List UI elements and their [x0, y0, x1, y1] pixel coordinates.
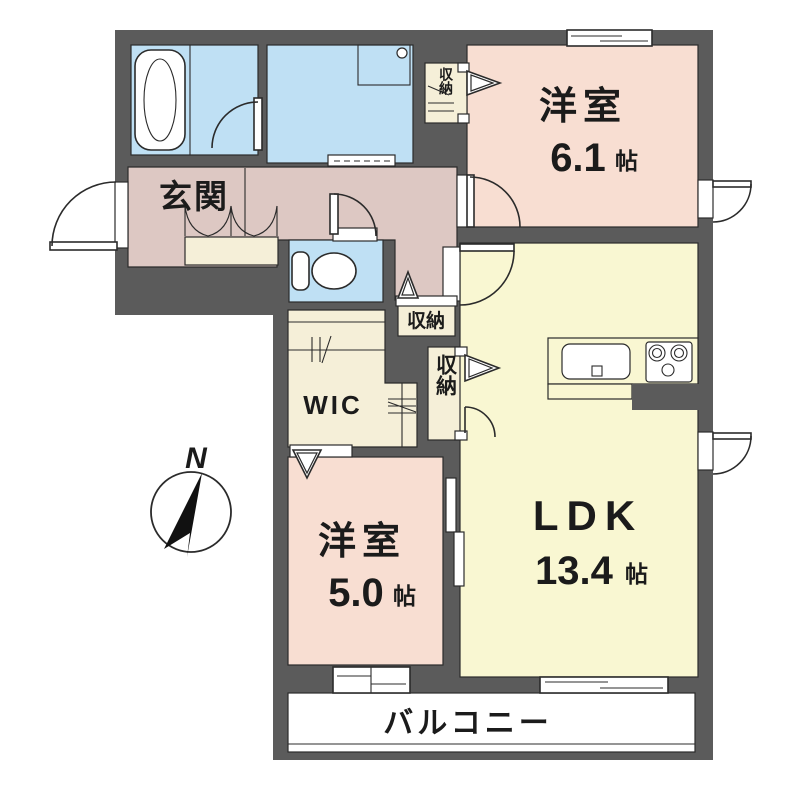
- ldk-size-unit: 帖: [625, 561, 648, 587]
- ldk-window: [540, 677, 668, 693]
- storage-top-label: 収納: [438, 66, 454, 96]
- western2-size-unit: 帖: [393, 583, 416, 609]
- kitchen-wall-stub: [632, 384, 713, 410]
- storage-right-label: 収納: [434, 354, 458, 397]
- entrance-door-opening: [115, 182, 128, 248]
- balcony: バルコニー: [288, 693, 695, 752]
- entrance-door-leaf: [50, 242, 117, 250]
- toilet-door-opening: [333, 228, 377, 241]
- ldk-door-opening: [443, 247, 460, 301]
- shoe-cabinet: [185, 237, 278, 265]
- floor-plan: バルコニー: [0, 0, 800, 800]
- western1-door-leaf: [467, 175, 474, 227]
- bathroom-door-leaf: [254, 98, 262, 150]
- storage-mid-label: 収納: [407, 309, 445, 332]
- kitchen-counter-return: [548, 384, 632, 399]
- toilet-door-leaf: [330, 194, 338, 234]
- kitchen-sink-icon: [562, 344, 630, 379]
- balcony-label: バルコニー: [383, 707, 552, 740]
- storage-top-door-jamb: [458, 114, 469, 123]
- balcony-wall-right: [695, 693, 713, 760]
- balcony-wall-bottom: [273, 752, 713, 760]
- toilet-bowl-icon: [312, 253, 356, 289]
- washroom-floor: [267, 45, 413, 163]
- toilet-tank-icon: [292, 252, 309, 290]
- western1-right-door-opening: [698, 180, 713, 218]
- compass-north-label: N: [185, 442, 208, 475]
- ldk-floor: [460, 243, 698, 677]
- entrance-label: 玄関: [159, 178, 229, 215]
- western1-size-unit: 帖: [615, 148, 638, 174]
- western2-label: 洋室: [318, 520, 406, 563]
- western1-label: 洋室: [539, 85, 627, 128]
- ldk-right-door-opening: [698, 432, 713, 470]
- western1-window: [567, 30, 652, 46]
- washer-drain-icon: [397, 48, 407, 58]
- western1-size: 6.1: [550, 136, 606, 180]
- ldk-size: 13.4: [535, 549, 614, 593]
- western1-right-door-leaf: [713, 181, 751, 187]
- balcony-wall-left: [273, 693, 288, 760]
- ldk-right-door-leaf: [713, 433, 751, 439]
- ldk-door-leaf: [460, 244, 514, 251]
- western2-size: 5.0: [328, 571, 384, 615]
- bathtub-icon: [135, 50, 185, 150]
- sliding-door-pane: [446, 478, 456, 532]
- ldk-label: LDK: [533, 492, 643, 539]
- wic-label: WIC: [303, 390, 363, 420]
- sliding-door-pane: [454, 532, 464, 586]
